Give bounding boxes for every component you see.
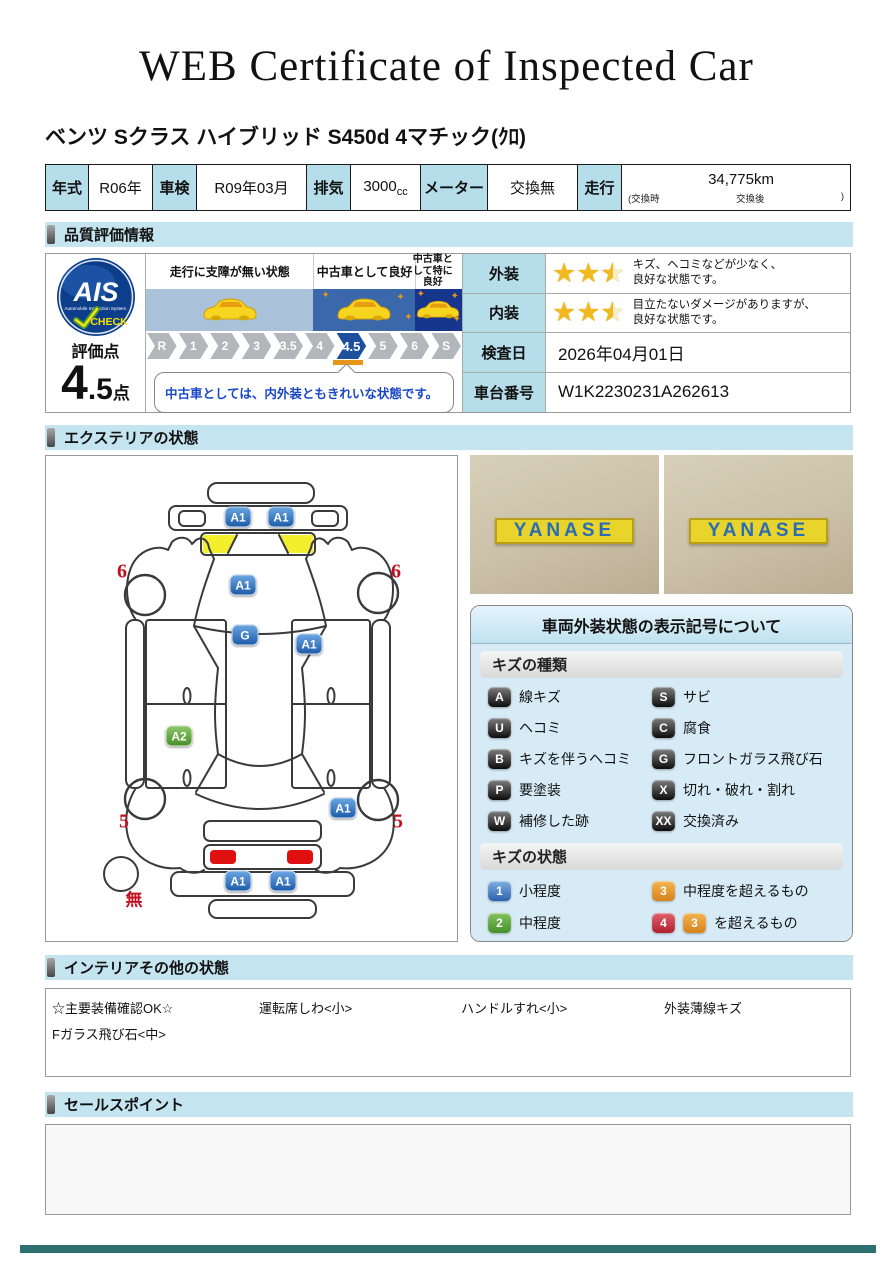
- damage-state-label: 中程度: [519, 913, 561, 933]
- damage-kind-label: 補修した跡: [519, 811, 589, 831]
- damage-marker-A1: A1: [270, 871, 297, 892]
- damage-state-label: 中程度を超えるもの: [683, 881, 809, 901]
- legend-title: 車両外装状態の表示記号について: [471, 606, 852, 644]
- damage-kind-label: 切れ・破れ・割れ: [683, 780, 795, 800]
- zone-label-3: 中古車として特に良好: [415, 254, 462, 289]
- damage-kind-list: A線キズSサビUヘコミC腐食Bキズを伴うヘコミGフロントガラス飛び石P要塗装X切…: [480, 678, 843, 843]
- quality-detail-table: 外装 ★★★★ キズ、ヘコミなどが少なく、 良好な状態です。 内装 ★★★★ 目…: [463, 254, 850, 412]
- interior-condition-item: 外装薄線キズ: [664, 998, 844, 1017]
- interior-condition-item: ☆主要装備確認OK☆: [52, 998, 259, 1017]
- spec-year-value: R06年: [89, 165, 153, 211]
- damage-code-badge: U: [488, 718, 511, 738]
- damage-marker-A1: A1: [230, 575, 257, 596]
- row-label: 車台番号: [463, 373, 546, 413]
- ais-score-column: AIS Automobile Inspection System. CHECK …: [46, 254, 146, 412]
- sparkle-icon: ✦: [321, 291, 329, 301]
- star-full-icon: ★: [552, 299, 576, 326]
- interior-condition-box: ☆主要装備確認OK☆運転席しわ<小>ハンドルすれ<小>外装薄線キズFガラス飛び石…: [45, 988, 851, 1077]
- damage-kind-item-B: Bキズを伴うヘコミ: [488, 749, 652, 769]
- scale-step-6: 6: [400, 333, 430, 359]
- ais-check-text: CHECK: [90, 316, 128, 328]
- score-integer: 4: [61, 365, 88, 403]
- damage-kind-item-G: Gフロントガラス飛び石: [652, 749, 837, 769]
- damage-marker-A1: A1: [225, 871, 252, 892]
- spec-row: 年式 R06年 車検 R09年03月 排気 3000cc メーター 交換無 走行…: [46, 165, 851, 211]
- damage-marker-G: G: [232, 625, 259, 646]
- damage-kind-header: キズの種類: [480, 651, 843, 678]
- wheel-mark-label: 6: [391, 561, 401, 584]
- state-code-badge: 4: [652, 913, 675, 933]
- spec-meter-label: メーター: [421, 165, 488, 211]
- certificate-page: WEB Certificate of Inspected Car ベンツ Sクラ…: [0, 0, 893, 1253]
- damage-legend-panel: 車両外装状態の表示記号について キズの種類 A線キズSサビUヘコミC腐食Bキズを…: [470, 605, 853, 942]
- spec-mileage-label: 走行: [578, 165, 622, 211]
- interior-condition-item: Fガラス飛び石<中>: [52, 1024, 259, 1043]
- damage-kind-label: 線キズ: [519, 687, 561, 707]
- star-full-icon: ★: [576, 299, 600, 326]
- section-title: エクステリアの状態: [64, 427, 199, 448]
- scale-step-3: 3: [242, 333, 272, 359]
- interior-condition-item: 運転席しわ<小>: [259, 998, 461, 1017]
- spec-shaken-value: R09年03月: [197, 165, 307, 211]
- scale-step-4: 4: [305, 333, 335, 359]
- damage-kind-item-A: A線キズ: [488, 687, 652, 707]
- car-icon: [335, 297, 393, 323]
- mileage-note: (交換時 交換後 ): [628, 191, 844, 205]
- damage-code-badge: A: [488, 687, 511, 707]
- damage-state-item-3: 3中程度を超えるもの: [652, 881, 837, 901]
- star-full-icon: ★: [576, 260, 600, 287]
- sparkle-icon: ✦: [451, 292, 459, 302]
- damage-kind-label: 腐食: [683, 718, 711, 738]
- damage-kind-label: キズを伴うヘコミ: [519, 749, 631, 769]
- ais-logo-icon: AIS Automobile Inspection System. CHECK: [56, 257, 136, 337]
- mileage-note-mid: 交換後: [736, 191, 765, 205]
- scale-step-4.5: 4.5: [337, 333, 367, 359]
- state-code-badge: 3: [683, 913, 706, 933]
- zone-band-1: [146, 289, 313, 331]
- wheel-mark-label: 6: [117, 561, 127, 584]
- section-header-exterior: エクステリアの状態: [45, 425, 853, 450]
- zone-labels: 走行に支障が無い状態 中古車として良好 中古車として特に良好: [146, 254, 462, 289]
- score-unit: 点: [113, 387, 130, 401]
- star-full-icon: ★: [552, 260, 576, 287]
- damage-code-badge: C: [652, 718, 675, 738]
- damage-code-badge: X: [652, 780, 675, 800]
- car-name: ベンツ Sクラス ハイブリッド S450d 4マチック(ｸﾛ): [45, 121, 893, 151]
- zone-band-3: ✦ ✦ ✦: [415, 289, 462, 331]
- vin-row: 車台番号 W1K2230231A262613: [463, 373, 850, 413]
- inspection-date-value: 2026年04月01日: [546, 333, 850, 372]
- spec-mileage-value: 34,775km (交換時 交換後 ): [622, 165, 851, 211]
- scale-step-5: 5: [368, 333, 398, 359]
- section-accent-bar: [47, 958, 55, 977]
- photo-strip: YANASE YANASE: [470, 455, 853, 594]
- damage-state-item-1: 1小程度: [488, 881, 652, 901]
- spec-year-label: 年式: [46, 165, 89, 211]
- interior-condition-item: ハンドルすれ<小>: [461, 998, 664, 1017]
- section-accent-bar: [47, 1095, 55, 1114]
- damage-marker-A2: A2: [166, 726, 193, 747]
- row-label: 検査日: [463, 333, 546, 372]
- zone-band: ✦ ✦ ✦ ✦ ✦ ✦: [146, 289, 462, 331]
- section-title: 品質評価情報: [64, 224, 154, 245]
- damage-state-label: 小程度: [519, 881, 561, 901]
- state-code-badge: 1: [488, 881, 511, 901]
- damage-code-badge: B: [488, 749, 511, 769]
- scale-step-1: 1: [179, 333, 209, 359]
- score-decimal: .5: [88, 378, 113, 402]
- star-rating: ★★★★: [552, 299, 625, 326]
- mileage-note-close: ): [841, 191, 844, 205]
- damage-kind-label: ヘコミ: [519, 718, 561, 738]
- damage-marker-A1: A1: [330, 798, 357, 819]
- damage-code-badge: S: [652, 687, 675, 707]
- damage-state-list: 1小程度3中程度を超えるもの2中程度43を超えるもの: [480, 870, 843, 939]
- damage-kind-item-U: Uヘコミ: [488, 718, 652, 738]
- damage-kind-item-S: Sサビ: [652, 687, 837, 707]
- damage-kind-label: フロントガラス飛び石: [683, 749, 823, 769]
- interior-rating-row: 内装 ★★★★ 目立たないダメージがありますが、 良好な状態です。: [463, 294, 850, 334]
- damage-kind-item-X: X切れ・破れ・割れ: [652, 780, 837, 800]
- section-accent-bar: [47, 225, 55, 244]
- damage-kind-item-C: C腐食: [652, 718, 837, 738]
- section-header-quality: 品質評価情報: [45, 222, 853, 247]
- score-value: 4 .5 点: [61, 365, 130, 403]
- inspection-date-row: 検査日 2026年04月01日: [463, 333, 850, 373]
- scale-step-S: S: [431, 333, 461, 359]
- zone-label-2: 中古車として良好: [313, 254, 414, 289]
- interior-condition-list: ☆主要装備確認OK☆運転席しわ<小>ハンドルすれ<小>外装薄線キズFガラス飛び石…: [52, 998, 844, 1043]
- car-diagram-drawing: [46, 456, 459, 943]
- legend-body: キズの種類 A線キズSサビUヘコミC腐食Bキズを伴うヘコミGフロントガラス飛び石…: [471, 644, 852, 942]
- zone-band-2: ✦ ✦ ✦: [313, 289, 414, 331]
- vehicle-photo: YANASE: [470, 455, 659, 594]
- sparkle-icon: ✦: [417, 290, 425, 300]
- damage-marker-A1: A1: [296, 634, 323, 655]
- quality-panel: AIS Automobile Inspection System. CHECK …: [45, 253, 851, 413]
- damage-kind-label: 交換済み: [683, 811, 739, 831]
- exterior-section: A1A1A1GA1A2A1A1A16655無 YANASE YANASE 車両外…: [45, 455, 853, 942]
- car-diagram: A1A1A1GA1A2A1A1A16655無: [45, 455, 458, 942]
- row-label: 内装: [463, 294, 546, 333]
- damage-code-badge: XX: [652, 811, 675, 831]
- rating-text: 目立たないダメージがありますが、 良好な状態です。: [633, 298, 816, 328]
- wheel-mark-label: 5: [393, 811, 403, 834]
- scale-step-R: R: [147, 333, 177, 359]
- wheel-mark-label: 5: [119, 811, 129, 834]
- sales-point-box: [45, 1124, 851, 1215]
- rating-scale-column: 走行に支障が無い状態 中古車として良好 中古車として特に良好 ✦ ✦ ✦ ✦ ✦…: [146, 254, 463, 412]
- vin-value: W1K2230231A262613: [546, 373, 850, 413]
- footer-bar: [20, 1245, 876, 1253]
- state-code-badge: 2: [488, 913, 511, 933]
- sparkle-icon: ✦: [404, 313, 412, 323]
- exterior-rating-row: 外装 ★★★★ キズ、ヘコミなどが少なく、 良好な状態です。: [463, 254, 850, 294]
- vehicle-photo: YANASE: [664, 455, 853, 594]
- scale-step-3.5: 3.5: [273, 333, 303, 359]
- ais-logo-text: AIS: [72, 277, 118, 307]
- spec-displacement-label: 排気: [307, 165, 351, 211]
- damage-code-badge: G: [652, 749, 675, 769]
- displacement-unit: cc: [397, 186, 408, 198]
- page-title: WEB Certificate of Inspected Car: [0, 0, 893, 91]
- spec-table: 年式 R06年 車検 R09年03月 排気 3000cc メーター 交換無 走行…: [45, 164, 851, 211]
- sparkle-icon: ✦: [396, 293, 404, 303]
- star-half-icon: ★★: [600, 299, 624, 326]
- mileage-km: 34,775km: [638, 171, 844, 188]
- damage-kind-item-P: P要塗装: [488, 780, 652, 800]
- section-accent-bar: [47, 428, 55, 447]
- damage-state-item-4: 43を超えるもの: [652, 913, 837, 933]
- scale-step-2: 2: [210, 333, 240, 359]
- damage-state-header: キズの状態: [480, 843, 843, 870]
- wheel-mark-label: 無: [126, 886, 143, 911]
- star-rating: ★★★★: [552, 260, 625, 287]
- damage-code-badge: W: [488, 811, 511, 831]
- spec-displacement-value: 3000cc: [351, 165, 421, 211]
- sparkle-icon: ✦: [453, 315, 461, 325]
- exterior-rating-value: ★★★★ キズ、ヘコミなどが少なく、 良好な状態です。: [546, 254, 850, 293]
- spec-meter-value: 交換無: [488, 165, 578, 211]
- zone-label-1: 走行に支障が無い状態: [146, 263, 313, 280]
- yanase-sign: YANASE: [689, 518, 829, 544]
- evaluation-comment: 中古車としては、内外装ともきれいな状態です。: [154, 372, 454, 413]
- yanase-sign: YANASE: [495, 518, 635, 544]
- star-half-icon: ★★: [600, 260, 624, 287]
- car-icon: [201, 297, 259, 323]
- damage-kind-label: 要塗装: [519, 780, 561, 800]
- damage-state-item-2: 2中程度: [488, 913, 652, 933]
- damage-kind-item-W: W補修した跡: [488, 811, 652, 831]
- state-code-badge: 3: [652, 881, 675, 901]
- section-header-sales: セールスポイント: [45, 1092, 853, 1117]
- section-title: セールスポイント: [64, 1094, 184, 1115]
- damage-kind-item-XX: XX交換済み: [652, 811, 837, 831]
- damage-marker-A1: A1: [268, 507, 295, 528]
- damage-kind-label: サビ: [683, 687, 711, 707]
- mileage-note-pre: (交換時: [628, 191, 660, 205]
- interior-rating-value: ★★★★ 目立たないダメージがありますが、 良好な状態です。: [546, 294, 850, 333]
- damage-state-label: を超えるもの: [714, 913, 798, 933]
- section-header-interior: インテリアその他の状態: [45, 955, 853, 980]
- rating-scale: R1233.544.556S: [146, 333, 462, 359]
- spec-shaken-label: 車検: [153, 165, 197, 211]
- rating-text: キズ、ヘコミなどが少なく、 良好な状態です。: [633, 258, 783, 288]
- damage-marker-A1: A1: [225, 507, 252, 528]
- row-label: 外装: [463, 254, 546, 293]
- displacement-number: 3000: [363, 178, 396, 195]
- section-title: インテリアその他の状態: [64, 957, 229, 978]
- exterior-right-column: YANASE YANASE 車両外装状態の表示記号について キズの種類 A線キズ…: [470, 455, 853, 942]
- damage-code-badge: P: [488, 780, 511, 800]
